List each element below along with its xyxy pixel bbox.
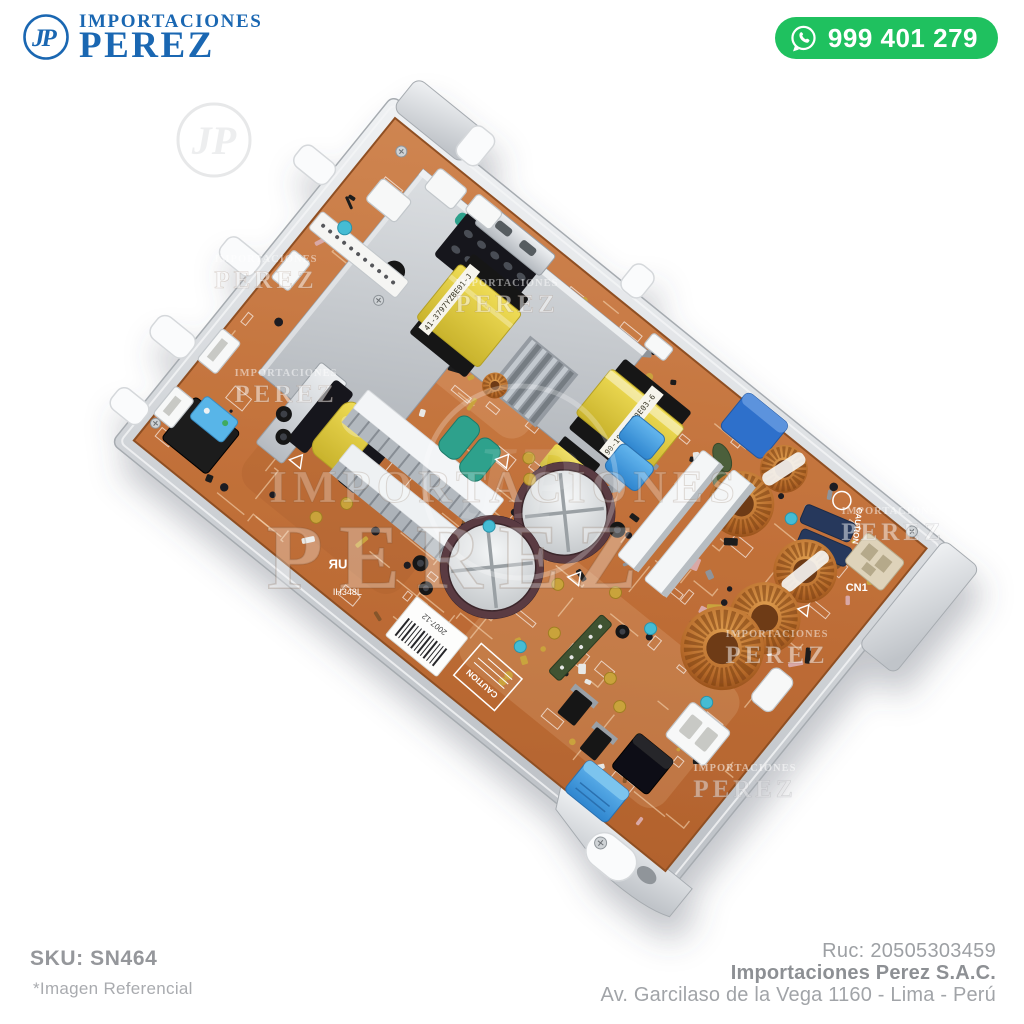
cn1-label: CN1 [846, 582, 868, 594]
svg-text:IMPORTACIONES: IMPORTACIONES [694, 763, 797, 774]
watermark-big-line2: PEREZ [267, 506, 654, 608]
watermark-small: IMPORTACIONES PEREZ [234, 368, 337, 408]
svg-text:PEREZ: PEREZ [214, 267, 317, 294]
watermark-small: IMPORTACIONES PEREZ [214, 254, 317, 294]
brand-logo: JP IMPORTACIONES PEREZ [20, 11, 262, 63]
whatsapp-icon [788, 23, 819, 54]
svg-text:JP: JP [31, 25, 58, 52]
svg-text:PEREZ: PEREZ [234, 381, 337, 408]
sku-block: SKU: SN464 *Imagen Referencial [30, 947, 193, 999]
company-address: Av. Garcilaso de la Vega 1160 - Lima - P… [601, 984, 996, 1006]
watermark-big-line1: IMPORTACIONES [269, 461, 741, 512]
svg-text:PEREZ: PEREZ [725, 642, 828, 669]
watermark-small: IMPORTACIONES PEREZ [455, 278, 558, 318]
company-name: Importaciones Perez S.A.C. [601, 962, 996, 984]
watermark-small: IMPORTACIONES PEREZ [841, 506, 944, 546]
brand-name-bottom: PEREZ [79, 31, 262, 61]
brand-monogram-icon: JP [20, 11, 72, 63]
watermark-small: IMPORTACIONES PEREZ [693, 763, 796, 803]
svg-text:IMPORTACIONES: IMPORTACIONES [215, 254, 318, 265]
svg-text:IMPORTACIONES: IMPORTACIONES [726, 629, 829, 640]
watermark-small: IMPORTACIONES PEREZ [725, 629, 828, 669]
svg-text:IMPORTACIONES: IMPORTACIONES [456, 278, 559, 289]
svg-text:IMPORTACIONES: IMPORTACIONES [235, 368, 338, 379]
whatsapp-badge[interactable]: 999 401 279 [775, 17, 998, 59]
image-disclaimer: *Imagen Referencial [30, 979, 193, 999]
svg-text:PEREZ: PEREZ [841, 519, 944, 546]
svg-text:IMPORTACIONES: IMPORTACIONES [842, 506, 945, 517]
product-card: 41-3797YZBE01-J 90-19A17 [0, 0, 1024, 1024]
svg-text:PEREZ: PEREZ [693, 776, 796, 803]
company-info: Ruc: 20505303459 Importaciones Perez S.A… [601, 940, 996, 1006]
phone-number: 999 401 279 [828, 23, 978, 54]
product-photo: 41-3797YZBE01-J 90-19A17 [0, 0, 1024, 1024]
watermark-monogram: JP [191, 118, 237, 163]
sku-label: SKU: SN464 [30, 947, 193, 971]
svg-text:PEREZ: PEREZ [455, 291, 558, 318]
company-ruc: Ruc: 20505303459 [601, 940, 996, 962]
